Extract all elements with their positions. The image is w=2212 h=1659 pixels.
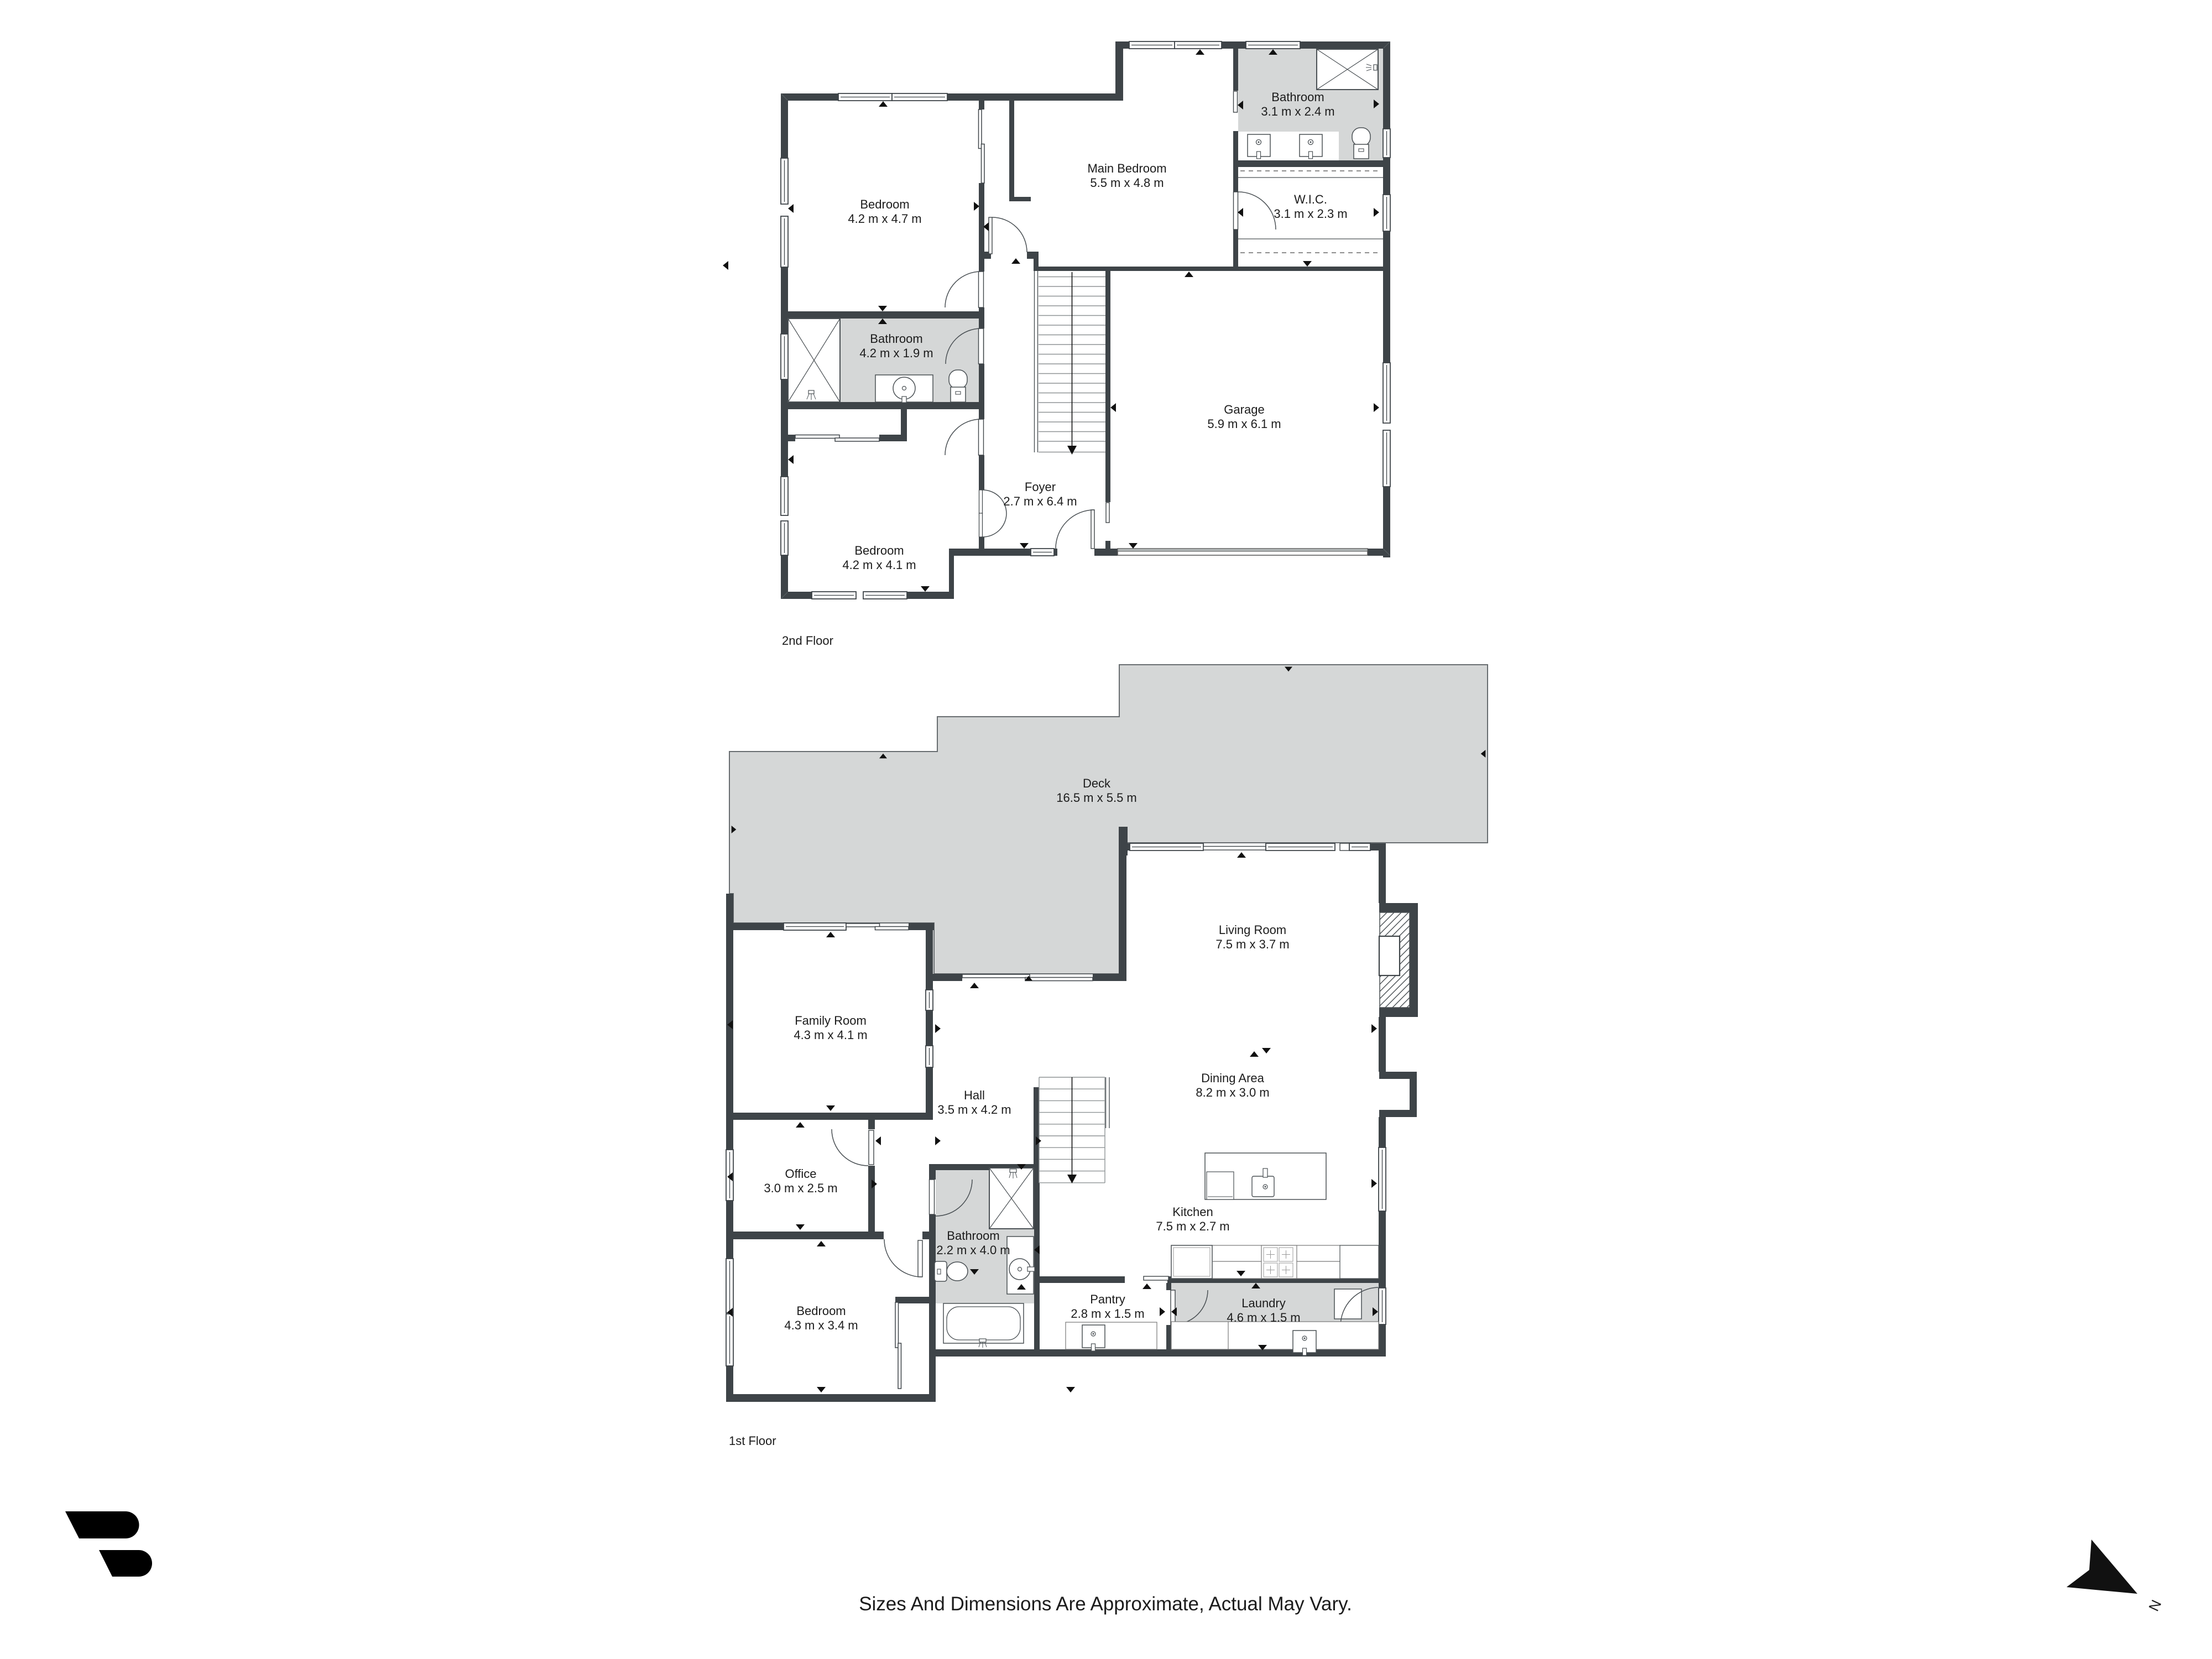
svg-text:Foyer: Foyer [1025, 480, 1056, 494]
svg-text:7.5 m x 3.7 m: 7.5 m x 3.7 m [1215, 937, 1289, 951]
svg-text:4.6 m x 1.5 m: 4.6 m x 1.5 m [1227, 1311, 1300, 1324]
svg-text:3.5 m x 4.2 m: 3.5 m x 4.2 m [937, 1103, 1011, 1117]
svg-text:4.3 m x 4.1 m: 4.3 m x 4.1 m [794, 1028, 867, 1042]
svg-text:2.2 m x 4.0 m: 2.2 m x 4.0 m [936, 1243, 1010, 1257]
svg-text:16.5 m x 5.5 m: 16.5 m x 5.5 m [1056, 791, 1137, 805]
svg-text:7.5 m x 2.7 m: 7.5 m x 2.7 m [1156, 1219, 1229, 1233]
svg-text:Bedroom: Bedroom [796, 1304, 846, 1318]
svg-text:Hall: Hall [964, 1088, 985, 1102]
svg-text:4.2 m x 4.1 m: 4.2 m x 4.1 m [842, 558, 916, 572]
svg-text:Bathroom: Bathroom [947, 1229, 999, 1243]
svg-text:Garage: Garage [1224, 403, 1264, 416]
svg-text:5.9 m x 6.1 m: 5.9 m x 6.1 m [1207, 417, 1281, 431]
svg-text:Bathroom: Bathroom [870, 332, 922, 346]
svg-text:3.1 m x 2.4 m: 3.1 m x 2.4 m [1261, 105, 1334, 118]
svg-text:Sizes And Dimensions Are Appro: Sizes And Dimensions Are Approximate, Ac… [859, 1593, 1352, 1615]
svg-text:8.2 m x 3.0 m: 8.2 m x 3.0 m [1196, 1086, 1269, 1099]
svg-text:Dining Area: Dining Area [1201, 1071, 1265, 1085]
svg-text:4.2 m x 1.9 m: 4.2 m x 1.9 m [859, 346, 933, 360]
svg-text:W.I.C.: W.I.C. [1294, 192, 1327, 206]
svg-text:Laundry: Laundry [1241, 1296, 1286, 1310]
svg-text:1st Floor: 1st Floor [729, 1434, 776, 1448]
svg-text:Main Bedroom: Main Bedroom [1087, 161, 1166, 175]
svg-text:2.8 m x 1.5 m: 2.8 m x 1.5 m [1071, 1307, 1144, 1321]
svg-text:Office: Office [785, 1167, 816, 1181]
svg-text:5.5 m x 4.8 m: 5.5 m x 4.8 m [1090, 176, 1164, 190]
svg-text:Living Room: Living Room [1219, 923, 1286, 937]
svg-text:Pantry: Pantry [1090, 1292, 1125, 1306]
svg-text:Kitchen: Kitchen [1172, 1205, 1213, 1219]
svg-text:Bedroom: Bedroom [860, 197, 909, 211]
svg-text:4.2 m x 4.7 m: 4.2 m x 4.7 m [848, 212, 921, 226]
svg-text:Bedroom: Bedroom [854, 544, 904, 557]
svg-text:Deck: Deck [1083, 776, 1111, 790]
svg-text:Bathroom: Bathroom [1271, 90, 1324, 104]
svg-text:4.3 m x 3.4 m: 4.3 m x 3.4 m [784, 1318, 858, 1332]
svg-text:3.1 m x 2.3 m: 3.1 m x 2.3 m [1274, 207, 1347, 221]
svg-text:2nd Floor: 2nd Floor [782, 634, 833, 648]
svg-text:Family Room: Family Room [795, 1014, 867, 1027]
svg-text:3.0 m x 2.5 m: 3.0 m x 2.5 m [764, 1181, 837, 1195]
svg-text:2.7 m x 6.4 m: 2.7 m x 6.4 m [1003, 494, 1077, 508]
